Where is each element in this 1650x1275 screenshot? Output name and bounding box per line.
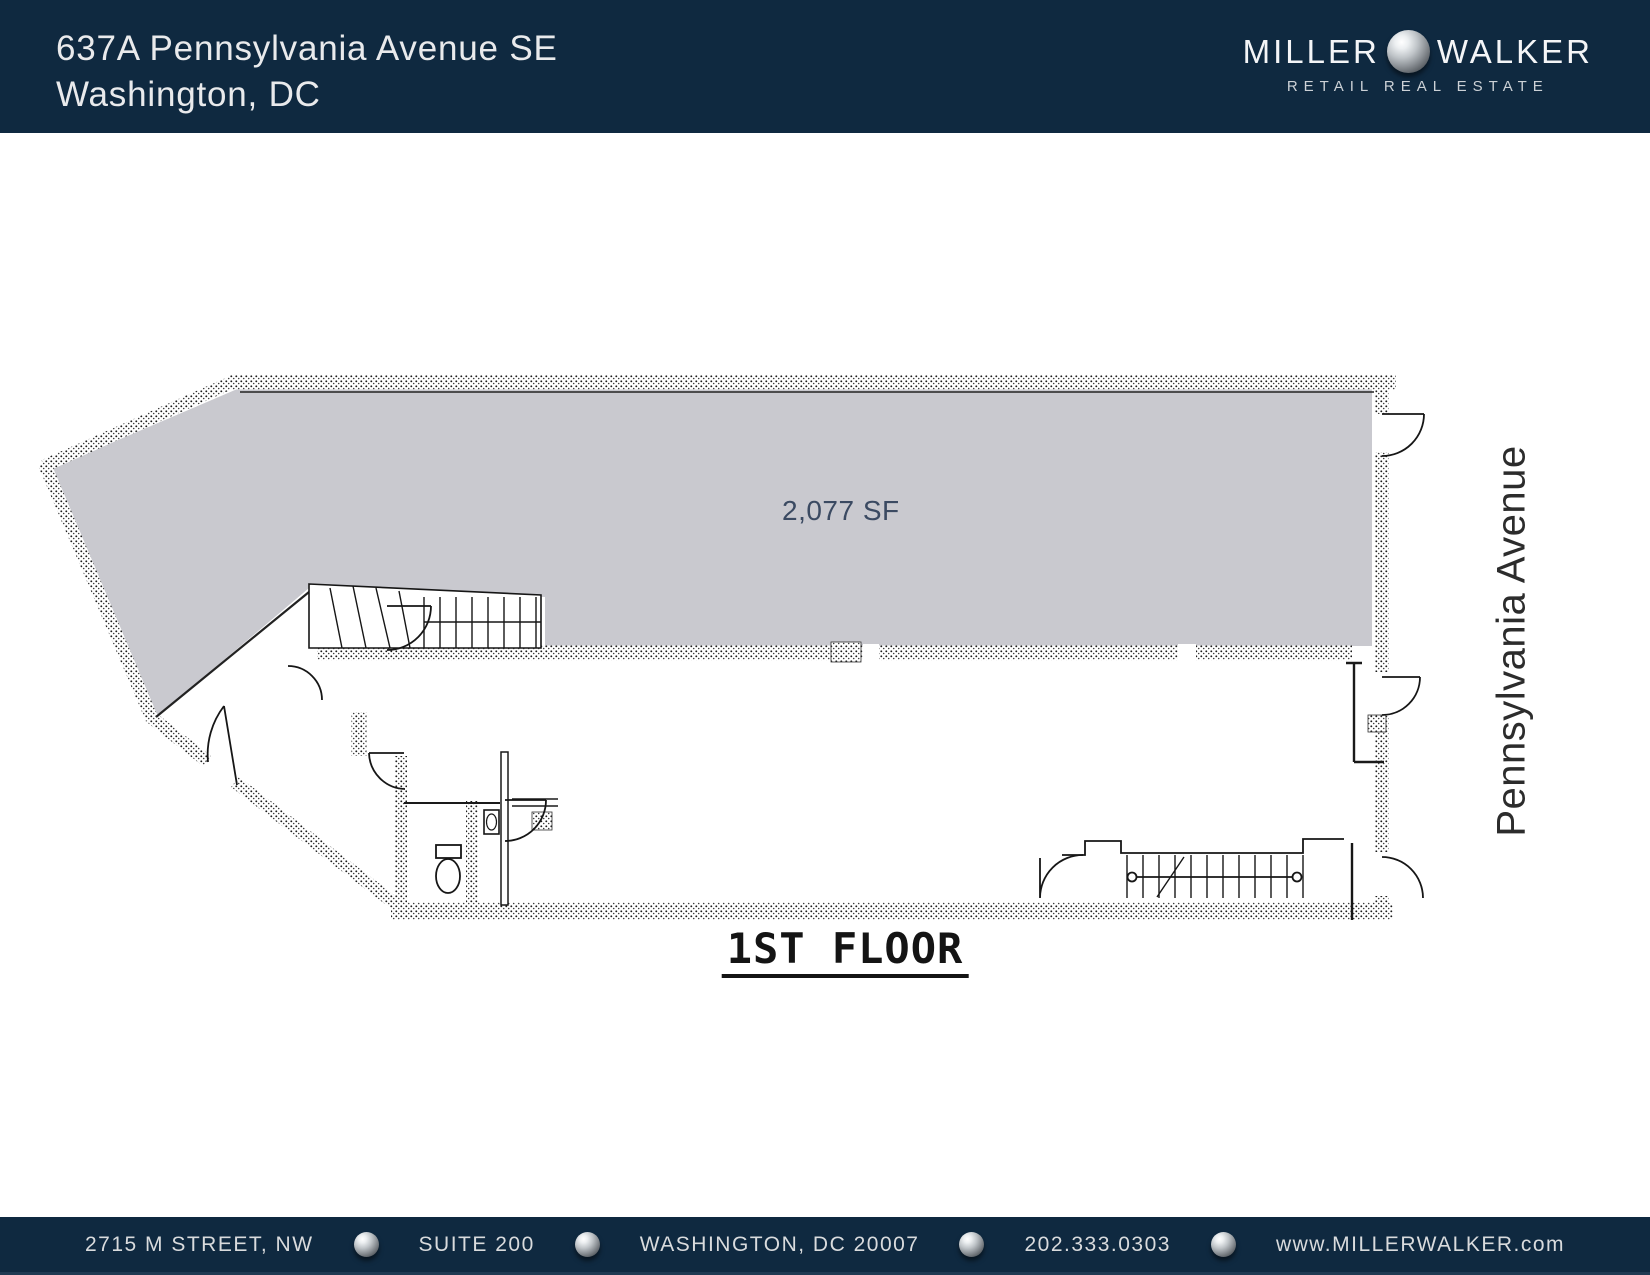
area-size-label: 2,077 SF <box>782 495 900 527</box>
footer-bar: 2715 M STREET, NW SUITE 200 WASHINGTON, … <box>0 1217 1650 1275</box>
pearl-separator-icon <box>1211 1232 1236 1257</box>
footer-phone: 202.333.0303 <box>1024 1233 1170 1257</box>
header-bar: 637A Pennsylvania Avenue SE Washington, … <box>0 0 1650 133</box>
footer-suite: SUITE 200 <box>419 1233 535 1257</box>
floor-plan-drawing <box>0 0 1650 1275</box>
footer-city: WASHINGTON, DC 20007 <box>640 1233 920 1257</box>
property-title: 637A Pennsylvania Avenue SE Washington, … <box>56 26 558 118</box>
pearl-sphere-icon <box>1387 30 1430 73</box>
footer-street: 2715 M STREET, NW <box>85 1233 314 1257</box>
property-address-line2: Washington, DC <box>56 72 558 118</box>
floor-name-label: 1ST FLOOR <box>722 924 969 978</box>
upper-staircase <box>309 584 541 648</box>
pearl-separator-icon <box>354 1232 379 1257</box>
lower-staircase <box>1062 839 1344 898</box>
brand-name: MILLER WALKER <box>1243 30 1593 73</box>
brand-tagline: RETAIL REAL ESTATE <box>1287 78 1549 95</box>
pearl-separator-icon <box>959 1232 984 1257</box>
pearl-separator-icon <box>575 1232 600 1257</box>
brand-word-walker: WALKER <box>1437 31 1593 73</box>
property-address-line1: 637A Pennsylvania Avenue SE <box>56 26 558 72</box>
brand-logo: MILLER WALKER RETAIL REAL ESTATE <box>1243 30 1593 95</box>
street-name-label: Pennsylvania Avenue <box>1490 445 1535 836</box>
footer-website: www.MILLERWALKER.com <box>1276 1233 1565 1257</box>
shaded-area <box>48 387 1372 721</box>
brand-word-miller: MILLER <box>1243 31 1380 73</box>
